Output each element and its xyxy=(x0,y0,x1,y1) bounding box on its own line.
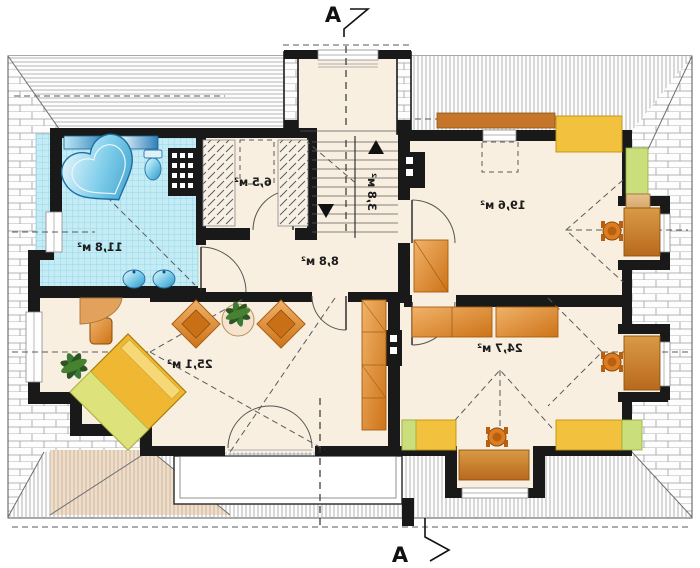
staircase-area-label: 3,8 м² xyxy=(365,173,379,211)
chimney-staircase xyxy=(400,152,425,188)
bed-pillow xyxy=(622,420,642,450)
clothes-rail xyxy=(278,140,308,226)
bedroom-top-window xyxy=(483,130,516,141)
toilet xyxy=(144,150,162,180)
bathroom-area-label: 11,8 м² xyxy=(77,240,123,254)
bottom-dormer-window xyxy=(462,488,528,498)
hall-area-label: 8,8 м² xyxy=(301,254,339,268)
living-area-label: 25,1 м² xyxy=(167,357,213,371)
desk xyxy=(459,450,529,480)
floor-plan-page: 11,8 м² 6,5 м² 3,8 м² 8,8 м² 19,6 м² 25,… xyxy=(0,0,700,568)
desk-chair xyxy=(486,427,508,447)
floor-plan-drawing: 11,8 м² 6,5 м² 3,8 м² 8,8 м² 19,6 м² 25,… xyxy=(0,0,700,568)
stair-dormer-floor xyxy=(295,56,399,136)
desk-chair xyxy=(601,352,623,372)
wardrobe-yellow xyxy=(556,116,622,152)
wardrobe-area-label: 6,5 м² xyxy=(234,175,272,189)
section-flag-bottom-icon xyxy=(425,518,449,561)
desk-under-eave xyxy=(437,113,555,128)
chimney-bathroom xyxy=(168,148,198,196)
section-marker-top: A xyxy=(325,3,342,27)
balcony xyxy=(174,456,402,504)
storage-green xyxy=(626,148,648,194)
bed-pillow xyxy=(402,420,416,450)
bedroom-bottom-right-area-label: 24,7 м² xyxy=(477,341,523,355)
living-side-window xyxy=(26,312,42,382)
cabinet xyxy=(496,307,558,337)
bed xyxy=(556,420,622,450)
desk-chair xyxy=(601,221,623,241)
chimney-living xyxy=(386,330,402,366)
desk xyxy=(624,208,660,256)
clothes-rail xyxy=(203,140,235,226)
section-marker-bottom: A xyxy=(392,543,409,567)
section-flag-top-icon xyxy=(344,9,368,37)
bedroom-top-right-area-label: 19,6 м² xyxy=(480,198,526,212)
desk xyxy=(624,336,660,390)
